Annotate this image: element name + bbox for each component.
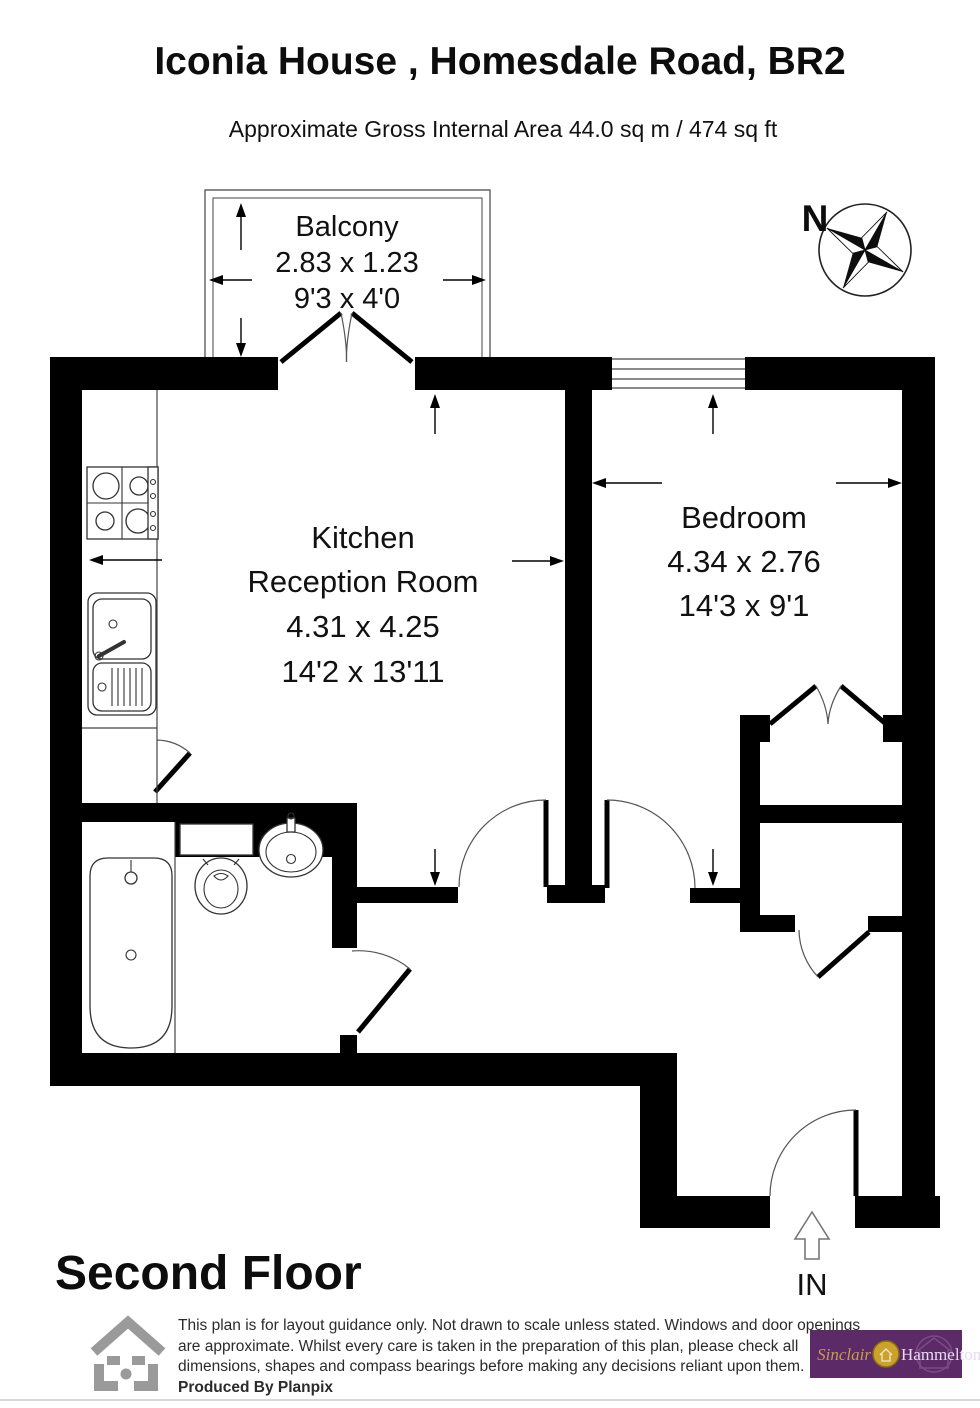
balcony-size-metric: 2.83 x 1.23 xyxy=(275,247,419,279)
entrance-label: IN xyxy=(797,1267,828,1302)
agent-logo-badge-icon xyxy=(873,1341,899,1367)
cupboard-door xyxy=(799,930,869,977)
north-label: N xyxy=(802,198,829,239)
credit-text: Produced By Planpix xyxy=(178,1379,333,1396)
floor-plan-canvas: Iconia House , Homesdale Road, BR2 Appro… xyxy=(0,0,980,1408)
agent-logo-text-2: Hammelton xyxy=(901,1345,980,1364)
walls xyxy=(50,357,940,1228)
closet-doors xyxy=(770,686,886,724)
kitchen-corner-door xyxy=(155,740,190,792)
bedroom-size-metric: 4.34 x 2.76 xyxy=(667,544,820,579)
kitchen-size-metric: 4.31 x 4.25 xyxy=(286,609,439,644)
bedroom-label-group: Bedroom 4.34 x 2.76 14'3 x 9'1 xyxy=(667,500,820,623)
compass-icon: N xyxy=(802,190,925,310)
balcony-label: Balcony xyxy=(295,211,399,243)
bedroom-window xyxy=(612,357,745,390)
bathtub-icon xyxy=(90,858,172,1048)
kitchen-size-imperial: 14'2 x 13'11 xyxy=(282,654,445,689)
kitchen-door xyxy=(459,800,546,887)
disclaimer-line-1: This plan is for layout guidance only. N… xyxy=(178,1317,860,1334)
bathroom-door xyxy=(352,951,410,1032)
kitchen-label-group: Kitchen Reception Room 4.31 x 4.25 14'2 … xyxy=(248,520,479,689)
area-summary: Approximate Gross Internal Area 44.0 sq … xyxy=(229,116,778,142)
balcony-size-imperial: 9'3 x 4'0 xyxy=(294,283,400,315)
agent-logo-text-1: Sinclair xyxy=(817,1345,871,1364)
bedroom-size-imperial: 14'3 x 9'1 xyxy=(679,588,810,623)
planpix-logo-icon xyxy=(94,1322,162,1386)
floor-label: Second Floor xyxy=(55,1247,362,1300)
entrance-door xyxy=(770,1110,856,1196)
entrance-arrow-icon xyxy=(795,1212,829,1259)
kitchen-label-1: Kitchen xyxy=(311,520,414,555)
disclaimer-line-3: dimensions, shapes and compass bearings … xyxy=(178,1358,804,1375)
toilet-icon xyxy=(180,824,253,914)
balcony-label-group: Balcony 2.83 x 1.23 9'3 x 4'0 xyxy=(275,211,419,315)
bedroom-label: Bedroom xyxy=(681,500,807,535)
balcony-doors xyxy=(281,313,412,362)
agent-logo: Sinclair Hammelton xyxy=(810,1330,980,1378)
entrance-marker: IN xyxy=(795,1212,829,1302)
bedroom-door xyxy=(607,800,695,888)
kitchen-sink-icon xyxy=(88,593,156,715)
hob-icon xyxy=(87,467,158,539)
disclaimer-line-2: are approximate. Whilst every care is ta… xyxy=(178,1338,798,1355)
disclaimer-text: This plan is for layout guidance only. N… xyxy=(178,1317,860,1396)
property-title: Iconia House , Homesdale Road, BR2 xyxy=(154,40,845,83)
kitchen-label-2: Reception Room xyxy=(248,564,479,599)
